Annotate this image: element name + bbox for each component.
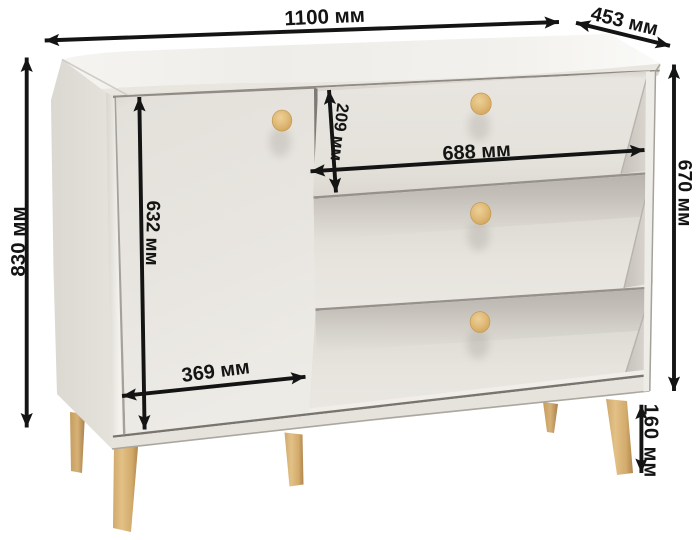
svg-text:670 мм: 670 мм bbox=[674, 160, 696, 227]
svg-text:632 мм: 632 мм bbox=[141, 200, 163, 265]
svg-text:160 мм: 160 мм bbox=[640, 404, 662, 479]
svg-text:1100 мм: 1100 мм bbox=[284, 4, 365, 31]
svg-text:688 мм: 688 мм bbox=[442, 139, 512, 165]
svg-text:830 мм: 830 мм bbox=[7, 206, 30, 276]
